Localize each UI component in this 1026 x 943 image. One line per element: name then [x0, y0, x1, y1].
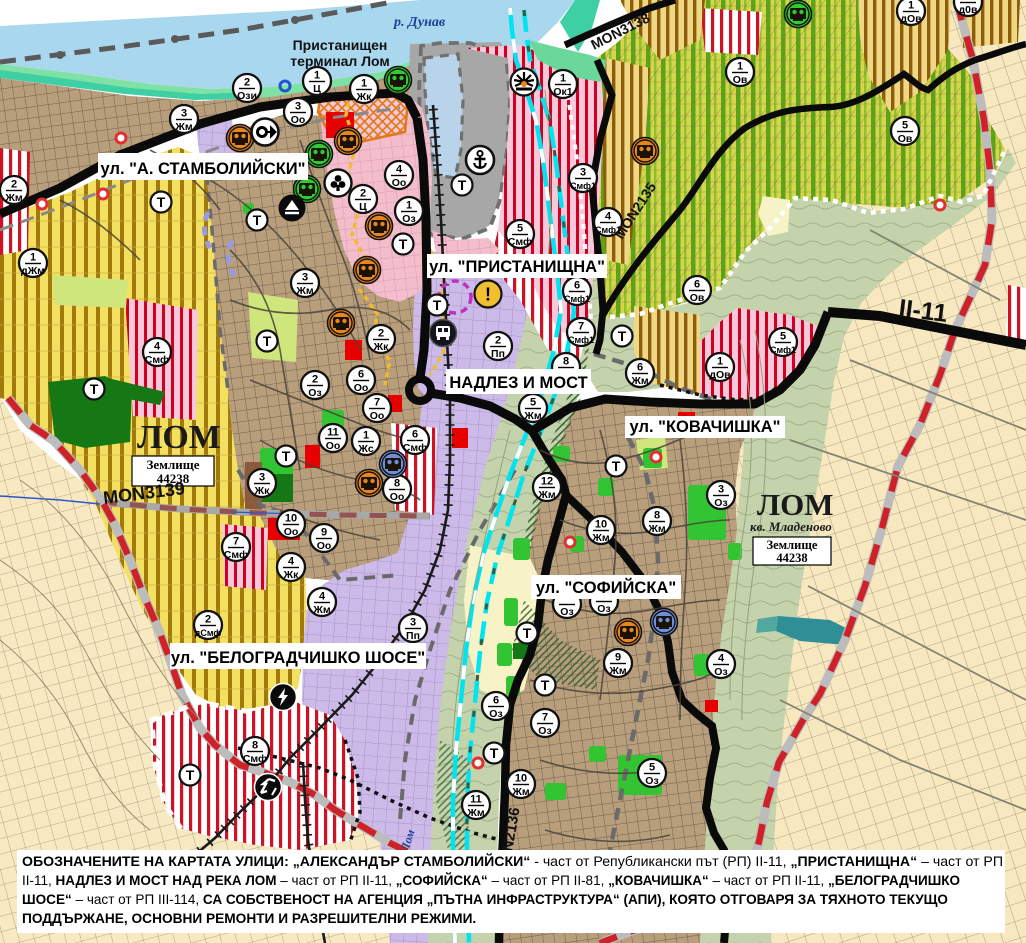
svg-text:Оо: Оо [392, 177, 407, 189]
svg-text:ЛОМ: ЛОМ [137, 419, 221, 456]
svg-text:Оз: Оз [597, 603, 610, 615]
svg-text:дЖм: дЖм [21, 265, 45, 277]
svg-text:Смф: Смф [243, 753, 267, 765]
svg-text:Т: Т [253, 212, 262, 228]
svg-text:Ок1: Ок1 [553, 86, 572, 98]
svg-text:Жс: Жс [357, 443, 373, 455]
svg-text:Смф: Смф [403, 442, 427, 454]
svg-text:Смф: Смф [145, 354, 169, 366]
svg-text:Оз: Оз [538, 725, 551, 737]
svg-text:Оо: Оо [317, 540, 332, 552]
svg-text:1: 1 [406, 200, 412, 212]
svg-text:2: 2 [495, 335, 501, 347]
svg-text:Оз: Оз [402, 213, 415, 225]
svg-text:II-11: II-11 [897, 294, 949, 328]
svg-text:2: 2 [312, 374, 318, 386]
svg-text:Смф1: Смф1 [770, 345, 796, 355]
svg-text:ШОСЕ“ – част от РП III-114, СА: ШОСЕ“ – част от РП III-114, СА СОБСТВЕНО… [22, 892, 948, 907]
svg-text:дСмф: дСмф [195, 628, 222, 638]
svg-text:1: 1 [361, 78, 367, 90]
svg-text:!: ! [485, 285, 491, 305]
svg-text:Смф: Смф [224, 549, 248, 561]
svg-text:Жк: Жк [356, 91, 372, 103]
svg-text:Жк: Жк [254, 485, 270, 497]
svg-text:Землище: Землище [767, 538, 818, 552]
svg-text:3: 3 [302, 272, 308, 284]
svg-text:Т: Т [490, 745, 499, 761]
svg-text:Смф: Смф [508, 236, 532, 248]
svg-text:4: 4 [605, 211, 612, 223]
svg-text:д0в: д0в [959, 4, 979, 16]
svg-text:Оз: Оз [714, 666, 727, 678]
svg-text:ул. "СОФИЙСКА": ул. "СОФИЙСКА" [536, 578, 676, 597]
svg-text:Землище: Землище [146, 457, 199, 472]
svg-text:7: 7 [374, 397, 380, 409]
svg-text:12: 12 [541, 476, 553, 488]
svg-text:р. Дунав: р. Дунав [393, 15, 446, 30]
svg-text:Оз: Оз [560, 606, 573, 618]
svg-text:Жм: Жм [523, 410, 541, 422]
svg-text:Жм: Жм [4, 192, 22, 204]
svg-text:Ов: Ов [898, 133, 913, 145]
svg-text:Оо: Оо [291, 114, 306, 126]
svg-text:ул. "А. СТАМБОЛИЙСКИ": ул. "А. СТАМБОЛИЙСКИ" [101, 159, 306, 178]
svg-text:Т: Т [433, 297, 442, 313]
svg-text:Оз: Оз [645, 775, 658, 787]
svg-text:Смф1: Смф1 [564, 294, 590, 304]
svg-text:1: 1 [30, 252, 36, 264]
svg-text:2: 2 [360, 188, 366, 200]
svg-text:8: 8 [394, 478, 400, 490]
svg-text:1: 1 [737, 61, 743, 73]
svg-text:Т: Т [186, 767, 195, 783]
svg-text:3: 3 [580, 167, 586, 179]
svg-text:дОв: дОв [709, 369, 731, 381]
svg-text:Смф1: Смф1 [568, 335, 594, 345]
svg-text:10: 10 [595, 519, 607, 531]
svg-text:Ов: Ов [733, 74, 748, 86]
svg-text:6: 6 [358, 369, 364, 381]
svg-text:7: 7 [542, 712, 548, 724]
svg-text:Т: Т [263, 333, 272, 349]
svg-text:Жм: Жм [466, 807, 484, 819]
svg-text:10: 10 [285, 513, 297, 525]
svg-text:9: 9 [615, 652, 621, 664]
svg-text:Оо: Оо [326, 440, 341, 452]
svg-text:терминал Лом: терминал Лом [290, 53, 390, 69]
svg-text:1: 1 [560, 73, 566, 85]
svg-text:5: 5 [902, 120, 908, 132]
svg-text:Т: Т [282, 448, 291, 464]
svg-text:1: 1 [363, 430, 369, 442]
svg-text:6: 6 [493, 695, 499, 707]
svg-text:8: 8 [654, 510, 660, 522]
svg-text:2: 2 [244, 77, 250, 89]
svg-text:Т: Т [523, 625, 532, 641]
svg-text:ул. "БЕЛОГРАДЧИШКО ШОСЕ": ул. "БЕЛОГРАДЧИШКО ШОСЕ" [171, 649, 425, 667]
svg-text:3: 3 [259, 472, 265, 484]
svg-text:Жм: Жм [511, 786, 529, 798]
svg-text:Жм: Жм [591, 532, 609, 544]
svg-text:8: 8 [563, 356, 569, 368]
svg-text:3: 3 [181, 108, 187, 120]
svg-text:Оо: Оо [390, 491, 405, 503]
svg-text:11: 11 [470, 794, 482, 806]
svg-text:II-11, НАДЛЕЗ И МОСТ НАД РЕКА: II-11, НАДЛЕЗ И МОСТ НАД РЕКА ЛОМ – част… [22, 873, 960, 888]
svg-text:8: 8 [252, 740, 258, 752]
svg-text:11: 11 [327, 427, 339, 439]
svg-text:Т: Т [157, 194, 166, 210]
svg-text:10: 10 [515, 773, 527, 785]
svg-text:Т: Т [458, 177, 467, 193]
svg-text:6: 6 [412, 429, 418, 441]
svg-text:Ц: Ц [313, 83, 321, 95]
svg-text:Пп: Пп [406, 630, 420, 642]
svg-text:ул. "КОВАЧИШКА": ул. "КОВАЧИШКА" [630, 418, 781, 436]
svg-text:7: 7 [578, 321, 584, 333]
svg-text:3: 3 [410, 617, 416, 629]
svg-text:Жк: Жк [283, 569, 299, 581]
svg-text:ЛОМ: ЛОМ [757, 487, 833, 522]
svg-text:5: 5 [780, 331, 786, 343]
svg-text:Жм: Жм [174, 121, 192, 133]
svg-text:Жм: Жм [647, 523, 665, 535]
svg-text:Т: Т [90, 381, 99, 397]
svg-text:9: 9 [321, 527, 327, 539]
svg-text:4: 4 [154, 341, 161, 353]
svg-text:Смф1: Смф1 [570, 181, 596, 191]
svg-text:Оз: Оз [308, 387, 321, 399]
svg-text:4: 4 [396, 164, 403, 176]
svg-text:Жм: Жм [608, 665, 626, 677]
svg-text:4: 4 [288, 556, 295, 568]
svg-text:3: 3 [295, 101, 301, 113]
svg-text:Т: Т [399, 236, 408, 252]
svg-text:Оо: Оо [354, 382, 369, 394]
svg-text:Ов: Ов [690, 292, 705, 304]
svg-text:4: 4 [319, 591, 326, 603]
svg-text:Оз: Оз [714, 497, 727, 509]
svg-text:ул. "ПРИСТАНИЩНА": ул. "ПРИСТАНИЩНА" [429, 258, 605, 276]
svg-text:2: 2 [378, 328, 384, 340]
svg-text:Т: Т [618, 328, 627, 344]
svg-text:Ози: Ози [237, 90, 257, 102]
svg-text:Пп: Пп [491, 348, 505, 360]
svg-text:Жм: Жм [295, 285, 313, 297]
svg-text:Оз: Оз [489, 708, 502, 720]
svg-text:5: 5 [649, 762, 655, 774]
svg-text:4: 4 [718, 653, 725, 665]
svg-text:5: 5 [530, 397, 536, 409]
svg-text:Оо: Оо [284, 526, 299, 538]
svg-text:Ц: Ц [359, 201, 367, 213]
svg-text:НАДЛЕЗ И МОСТ: НАДЛЕЗ И МОСТ [449, 374, 587, 392]
svg-text:1: 1 [908, 0, 914, 12]
svg-text:Пристанищен: Пристанищен [293, 37, 388, 53]
svg-text:ПОДДЪРЖАНЕ, ОСНОВНИ РЕМОНТИ И: ПОДДЪРЖАНЕ, ОСНОВНИ РЕМОНТИ И РАЗРЕШИТЕЛ… [22, 911, 476, 926]
svg-text:1: 1 [314, 70, 320, 82]
svg-text:3: 3 [718, 484, 724, 496]
svg-text:6: 6 [637, 362, 643, 374]
svg-text:7: 7 [233, 536, 239, 548]
svg-text:Жк: Жк [373, 341, 389, 353]
svg-text:Жм: Жм [312, 604, 330, 616]
svg-text:1: 1 [717, 356, 723, 368]
svg-text:6: 6 [574, 280, 580, 292]
svg-text:Т: Т [612, 458, 621, 474]
svg-text:2: 2 [205, 614, 211, 626]
svg-text:кв. Младеново: кв. Младеново [750, 519, 832, 534]
svg-text:Жм: Жм [537, 489, 555, 501]
svg-text:ОБОЗНАЧЕНИТЕ НА КАРТАТА УЛИЦИ:: ОБОЗНАЧЕНИТЕ НА КАРТАТА УЛИЦИ: „АЛЕКСАНД… [22, 854, 1003, 869]
svg-text:дОв: дОв [900, 13, 922, 25]
svg-text:5: 5 [517, 223, 523, 235]
svg-text:Оо: Оо [370, 410, 385, 422]
svg-text:44238: 44238 [776, 551, 807, 565]
svg-text:Т: Т [541, 677, 550, 693]
svg-text:Жм: Жм [630, 375, 648, 387]
svg-text:2: 2 [11, 179, 17, 191]
svg-text:6: 6 [694, 279, 700, 291]
